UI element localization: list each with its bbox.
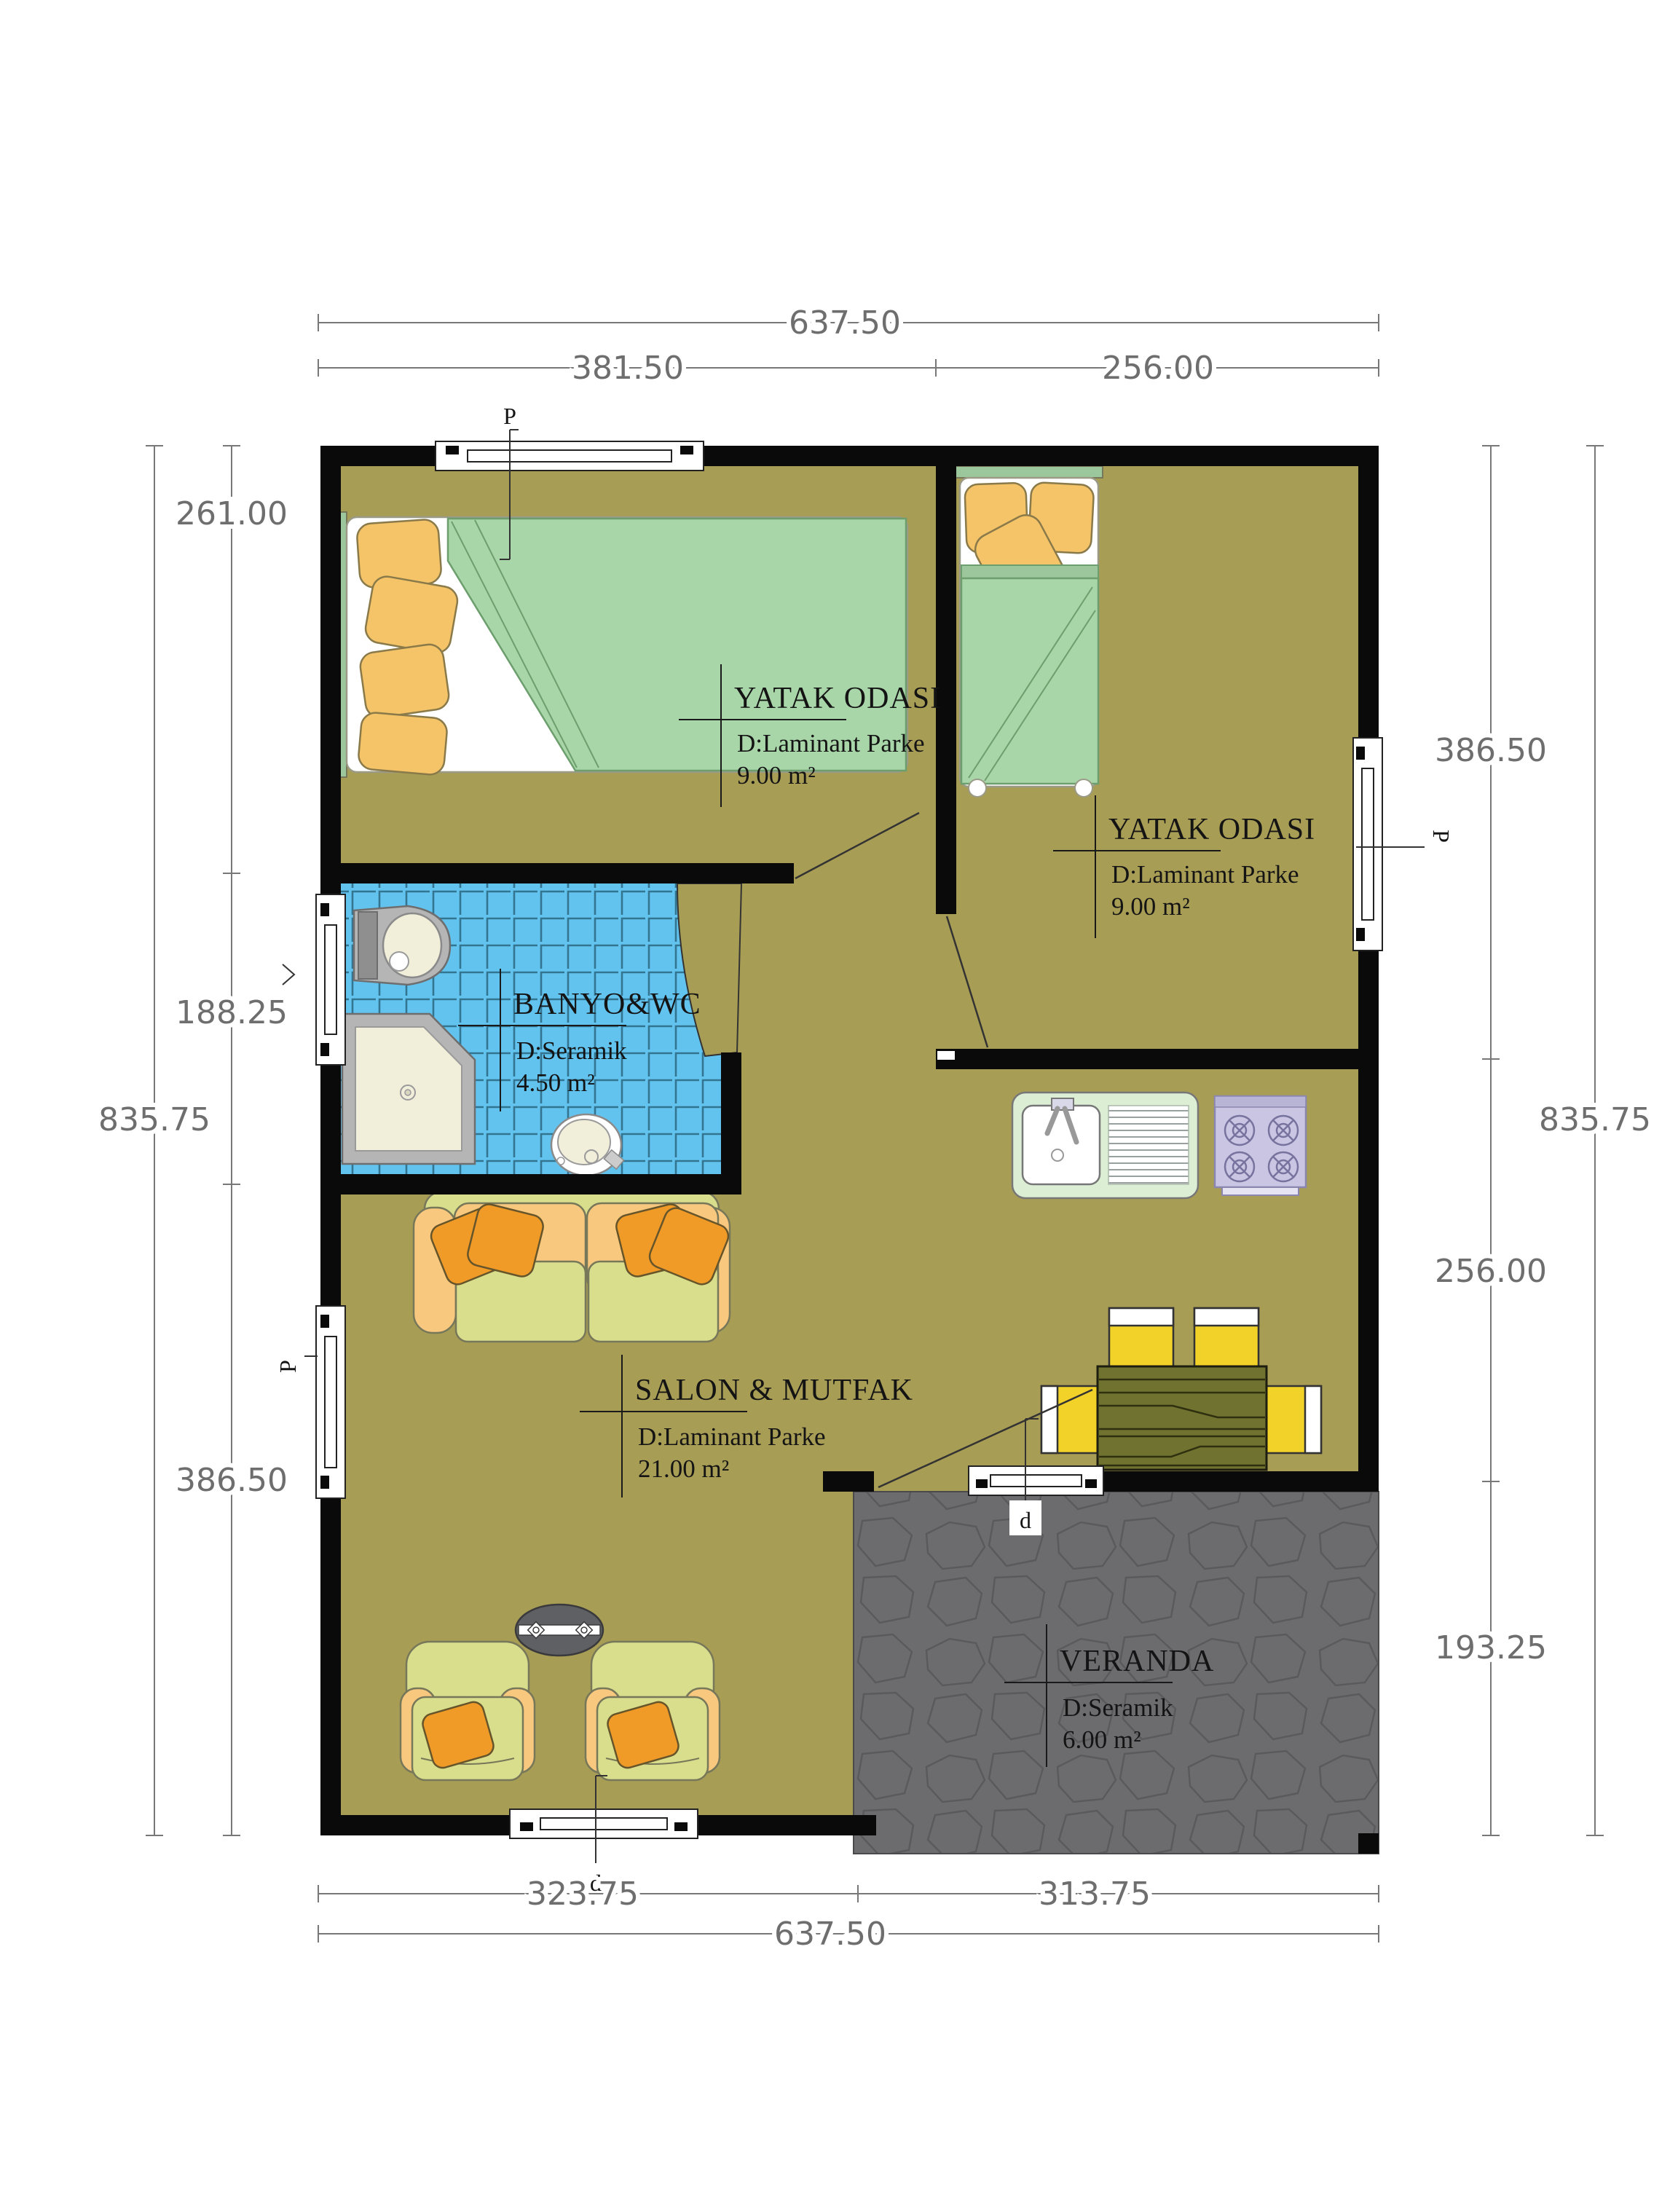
armchair (586, 1642, 720, 1780)
armchair (401, 1642, 535, 1780)
room-name: BANYO&WC (513, 988, 701, 1021)
dim-right-lower: 193.25 (1435, 1629, 1547, 1666)
room-area: 4.50 m² (516, 1068, 595, 1097)
bed-blanket-foldover (961, 565, 1098, 578)
sink-counter (1012, 1093, 1198, 1198)
room-floor: D:Laminant Parke (1111, 860, 1299, 889)
wall-veranda-top (1103, 1471, 1379, 1492)
dining-chair (1194, 1308, 1258, 1371)
window-marker-top: P (503, 403, 516, 429)
dining-chair (1109, 1308, 1173, 1371)
bed-foot (1075, 779, 1092, 797)
door-marker-veranda: d (1020, 1507, 1031, 1533)
dim-left-upper: 261.00 (176, 495, 288, 532)
toilet (354, 906, 450, 985)
wall-bedroom1-bottom (320, 863, 794, 883)
bed-headboard (951, 466, 1103, 478)
room-name: YATAK ODASI (1108, 813, 1315, 846)
door-jamb-notch (937, 1051, 955, 1060)
bedroom2-single-bed (951, 466, 1103, 797)
room-floor: D:Seramik (516, 1036, 627, 1065)
wall-left (320, 446, 341, 1835)
floor-plan-page: P P P d d YATAK ODASI D:Laminant Parke 9… (0, 0, 1678, 2212)
drainboard (1108, 1106, 1189, 1184)
veranda-corner-post (1358, 1833, 1379, 1854)
room-floor: D:Laminant Parke (737, 729, 925, 757)
wall-veranda-stub (823, 1471, 874, 1492)
window-bedroom1-top (436, 441, 704, 471)
dim-left-middle: 188.25 (176, 994, 288, 1031)
window-marker-left-salon: P (275, 1360, 301, 1373)
bed-foot (969, 779, 986, 797)
floor-plan-drawing: P P P d d YATAK ODASI D:Laminant Parke 9… (0, 0, 1678, 2212)
window-salon-bottom (510, 1809, 698, 1838)
wall-right (1358, 446, 1379, 1492)
wall-bedroom2-bottom (936, 1049, 1379, 1069)
room-area: 6.00 m² (1063, 1725, 1141, 1754)
window-veranda-top (969, 1466, 1103, 1495)
window-bathroom-left (316, 894, 345, 1065)
stove (1215, 1096, 1306, 1195)
room-name: VERANDA (1060, 1645, 1214, 1678)
dim-left-lower: 386.50 (176, 1462, 288, 1499)
wall-bathroom-right (721, 1052, 741, 1174)
dim-top-total: 637.50 (789, 304, 901, 342)
dim-left-total: 835.75 (98, 1101, 210, 1138)
dining-chair (1041, 1386, 1100, 1453)
window-marker-right-bedroom: P (1428, 830, 1454, 843)
dim-bottom-total: 637.50 (774, 1916, 886, 1953)
dim-top-right: 256.00 (1102, 350, 1214, 387)
dim-right-middle: 256.00 (1435, 1253, 1547, 1290)
dim-right-upper: 386.50 (1435, 732, 1547, 769)
room-floor: D:Seramik (1063, 1693, 1173, 1722)
sofa-two-seater (414, 1192, 732, 1342)
room-area: 9.00 m² (737, 761, 816, 790)
window-bedroom2-right (1353, 738, 1382, 950)
dining-table (1098, 1366, 1267, 1470)
dim-bottom-left: 323.75 (527, 1876, 639, 1913)
sink-basin (1023, 1106, 1100, 1184)
room-name: YATAK ODASI (734, 682, 941, 715)
coffee-table (516, 1605, 603, 1656)
room-area: 9.00 m² (1111, 892, 1190, 921)
room-area: 21.00 m² (638, 1455, 729, 1483)
room-name: SALON & MUTFAK (635, 1374, 913, 1407)
dining-chair (1263, 1386, 1321, 1453)
dim-bottom-right: 313.75 (1039, 1876, 1151, 1913)
wall-between-bedrooms (936, 446, 956, 914)
dim-top-left: 381.50 (572, 350, 684, 387)
wall-bathroom-bottom (320, 1174, 741, 1194)
kitchen (1012, 1093, 1306, 1198)
dim-right-total: 835.75 (1539, 1101, 1651, 1138)
stove-handle (1222, 1187, 1299, 1195)
window-salon-left (316, 1306, 345, 1498)
room-floor: D:Laminant Parke (638, 1422, 826, 1451)
